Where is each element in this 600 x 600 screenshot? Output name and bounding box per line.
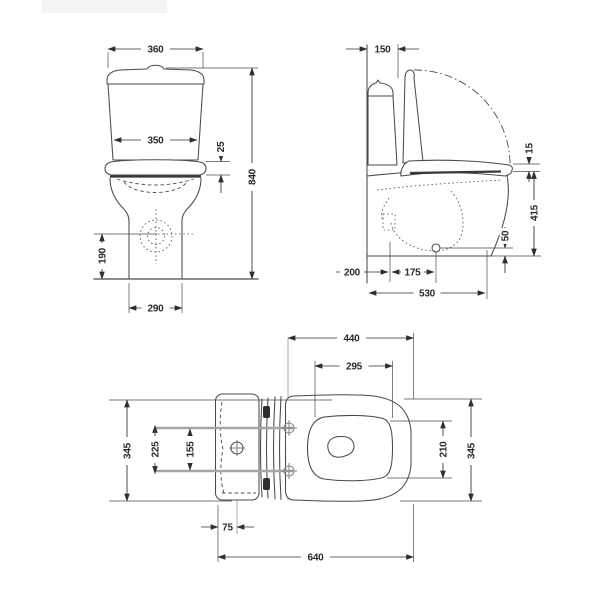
dim-top-overall-length: 640 <box>218 504 414 563</box>
dim-front-tank-width: 360 <box>108 44 203 69</box>
seat-front <box>105 160 206 175</box>
dim-front-base-width: 290 <box>129 283 182 314</box>
dim-label-side-outlet-setback: 175 <box>404 267 421 278</box>
dim-label-side-tank-depth: 150 <box>374 44 391 55</box>
lid-swing-arc <box>414 70 510 164</box>
side-view: 150 15 415 50 200 <box>336 44 541 299</box>
dim-top-inlet-offset: 75 <box>201 505 254 562</box>
dim-label-side-outlet-height: 50 <box>500 230 511 241</box>
dim-top-fixing-span-outer: 225 <box>150 426 162 474</box>
dim-front-outlet-height: 190 <box>94 234 157 279</box>
lid-raised <box>403 70 423 163</box>
dim-label-top-fixing-span-outer: 225 <box>150 441 161 458</box>
dim-label-top-bowl-opening-width: 210 <box>438 441 449 458</box>
dim-label-front-base-width: 290 <box>147 303 164 314</box>
bowl-right-outline <box>182 178 201 279</box>
dim-label-top-overall-length: 640 <box>307 552 324 563</box>
front-view: 360 350 25 840 190 <box>94 44 258 315</box>
top-view: 440 295 345 225 155 <box>109 333 482 564</box>
dim-label-front-tank-body-width: 350 <box>147 135 164 146</box>
dim-label-front-tank-width: 360 <box>147 44 164 55</box>
hinge-bolt-top <box>263 406 270 418</box>
dim-side-outlet-setback: 175 <box>392 252 436 283</box>
dim-label-top-fixing-span-inner: 155 <box>185 441 196 458</box>
hinge-line-3 <box>274 397 276 499</box>
dim-label-top-bowl-opening-length: 295 <box>346 361 363 372</box>
dim-front-seat-overlap: 25 <box>206 137 230 193</box>
toilet-dimension-drawing: 360 350 25 840 190 <box>0 0 600 600</box>
dim-side-overall-depth: 530 <box>369 250 487 299</box>
watermark-artifact <box>42 0 167 13</box>
hinge-bolt-bottom <box>263 478 270 490</box>
cistern-body-side <box>368 96 397 165</box>
dim-label-side-overall-depth: 530 <box>419 288 436 299</box>
cistern-lid-side <box>368 80 393 96</box>
hinge-line-4 <box>280 397 282 500</box>
dim-label-front-outlet-height: 190 <box>97 247 108 264</box>
dim-top-fixing-span-inner: 155 <box>185 429 197 470</box>
dim-label-top-overall-width-right: 345 <box>466 442 477 459</box>
hinge-line-1 <box>261 399 263 497</box>
bowl-inner-dashed <box>124 182 187 193</box>
seat-shadow-side <box>410 172 501 174</box>
dim-label-side-seat-thickness: 15 <box>524 143 535 154</box>
dim-side-seat-thickness: 15 <box>513 140 540 182</box>
cistern-body <box>108 84 203 160</box>
bowl-body-side <box>367 171 508 256</box>
bowl-rim-dashed <box>117 179 194 185</box>
technical-drawing-page: 360 350 25 840 190 <box>0 0 600 600</box>
dim-label-top-overall-width-left: 345 <box>122 442 133 459</box>
dim-label-side-rear-offset: 200 <box>344 267 361 278</box>
dim-label-front-overall-height: 840 <box>247 168 258 185</box>
dim-label-top-seat-length: 440 <box>343 333 360 344</box>
dim-label-side-rim-height: 415 <box>529 204 540 221</box>
bowl-left-outline <box>110 178 129 279</box>
dim-label-front-seat-overlap: 25 <box>216 141 227 152</box>
dim-label-top-inlet-offset: 75 <box>222 522 233 533</box>
